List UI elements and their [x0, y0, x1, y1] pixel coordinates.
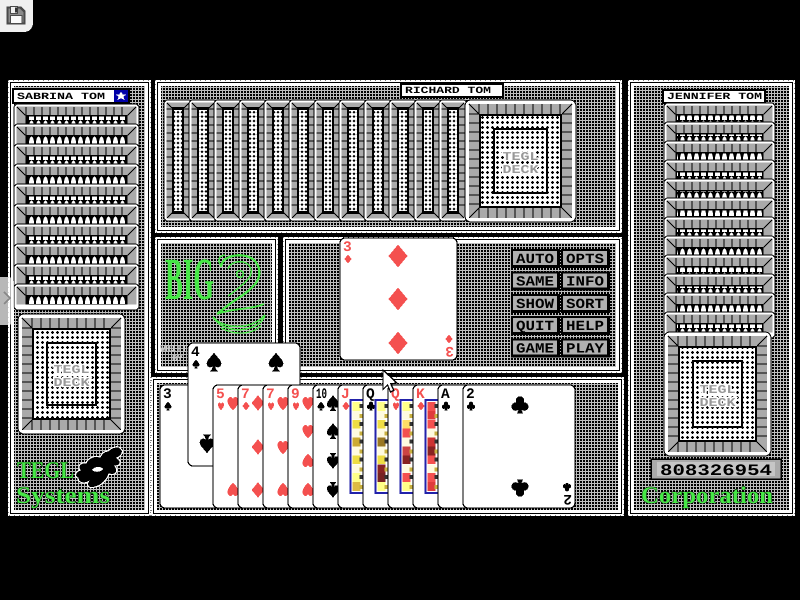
svg-text:Q: Q — [366, 387, 375, 403]
svg-text:J: J — [341, 387, 350, 403]
svg-text:808326954: 808326954 — [660, 462, 773, 480]
svg-text:9: 9 — [291, 387, 300, 403]
svg-text:INFO: INFO — [566, 274, 604, 290]
svg-text:K: K — [416, 387, 425, 403]
svg-text:BY: BY — [172, 354, 183, 364]
svg-text:PLAY: PLAY — [566, 342, 605, 358]
svg-text:HELP: HELP — [566, 319, 604, 335]
svg-text:AUTO: AUTO — [516, 252, 554, 268]
svg-text:TEGL: TEGL — [54, 363, 90, 377]
svg-text:BIG: BIG — [165, 246, 214, 312]
svg-text:GAME: GAME — [516, 342, 554, 358]
svg-text:5: 5 — [216, 387, 225, 403]
svg-text:TEGL: TEGL — [17, 458, 74, 484]
svg-text:2: 2 — [563, 490, 572, 506]
svg-text:TEGL: TEGL — [503, 150, 539, 164]
svg-text:2: 2 — [466, 387, 475, 403]
svg-text:OPTS: OPTS — [566, 252, 604, 268]
svg-text:A: A — [441, 387, 450, 403]
svg-text:Corporation: Corporation — [641, 483, 773, 509]
svg-text:DECK: DECK — [503, 163, 540, 177]
svg-text:4: 4 — [191, 345, 200, 361]
svg-text:10: 10 — [316, 387, 327, 403]
svg-text:7: 7 — [266, 387, 275, 403]
svg-text:QUIT: QUIT — [516, 319, 554, 335]
svg-text:7: 7 — [241, 387, 250, 403]
svg-text:SHOW: SHOW — [516, 297, 555, 313]
svg-text:3: 3 — [445, 342, 454, 358]
svg-text:SABRINA TOM: SABRINA TOM — [17, 91, 105, 102]
svg-text:RICHARD TOM: RICHARD TOM — [405, 85, 491, 96]
svg-text:SORT: SORT — [566, 297, 604, 313]
svg-text:JENNIFER TOM: JENNIFER TOM — [667, 91, 762, 102]
svg-text:DECK: DECK — [54, 376, 91, 390]
svg-text:WRITT: WRITT — [160, 344, 188, 354]
svg-text:3: 3 — [163, 387, 172, 403]
svg-text:SAME: SAME — [516, 274, 554, 290]
svg-text:TEGL: TEGL — [700, 383, 736, 397]
svg-text:DECK: DECK — [700, 396, 737, 410]
svg-text:3: 3 — [343, 240, 352, 256]
